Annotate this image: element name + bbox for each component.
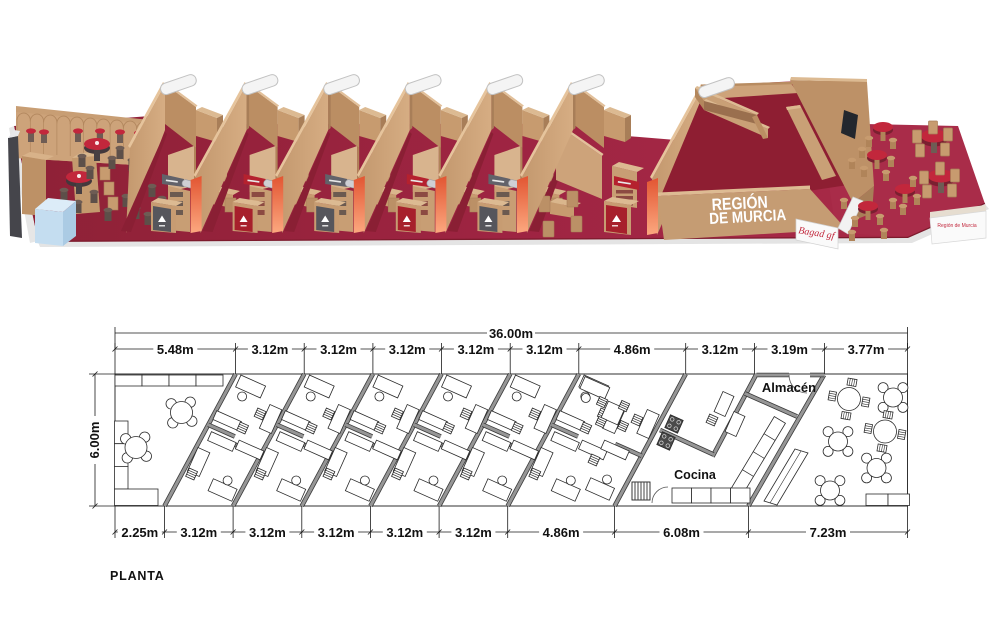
svg-text:3.12m: 3.12m — [389, 342, 426, 357]
svg-text:3.77m: 3.77m — [848, 342, 885, 357]
svg-text:PLANTA: PLANTA — [110, 569, 165, 583]
svg-text:Cocina: Cocina — [674, 468, 717, 482]
svg-text:6.08m: 6.08m — [663, 525, 700, 540]
svg-text:5.48m: 5.48m — [157, 342, 194, 357]
svg-text:7.23m: 7.23m — [810, 525, 847, 540]
svg-text:3.19m: 3.19m — [771, 342, 808, 357]
svg-text:3.12m: 3.12m — [702, 342, 739, 357]
svg-text:3.12m: 3.12m — [320, 342, 357, 357]
svg-text:3.12m: 3.12m — [251, 342, 288, 357]
svg-text:2.25m: 2.25m — [121, 525, 158, 540]
svg-text:3.12m: 3.12m — [457, 342, 494, 357]
svg-text:4.86m: 4.86m — [614, 342, 651, 357]
svg-text:3.12m: 3.12m — [526, 342, 563, 357]
svg-text:3.12m: 3.12m — [249, 525, 286, 540]
svg-text:Almacén: Almacén — [762, 380, 816, 395]
svg-text:6.00m: 6.00m — [87, 422, 102, 459]
svg-text:3.12m: 3.12m — [455, 525, 492, 540]
svg-text:3.12m: 3.12m — [318, 525, 355, 540]
svg-text:3.12m: 3.12m — [386, 525, 423, 540]
svg-text:4.86m: 4.86m — [543, 525, 580, 540]
svg-text:3.12m: 3.12m — [180, 525, 217, 540]
svg-text:36.00m: 36.00m — [489, 326, 533, 341]
svg-text:Región de Murcia: Región de Murcia — [937, 223, 976, 229]
